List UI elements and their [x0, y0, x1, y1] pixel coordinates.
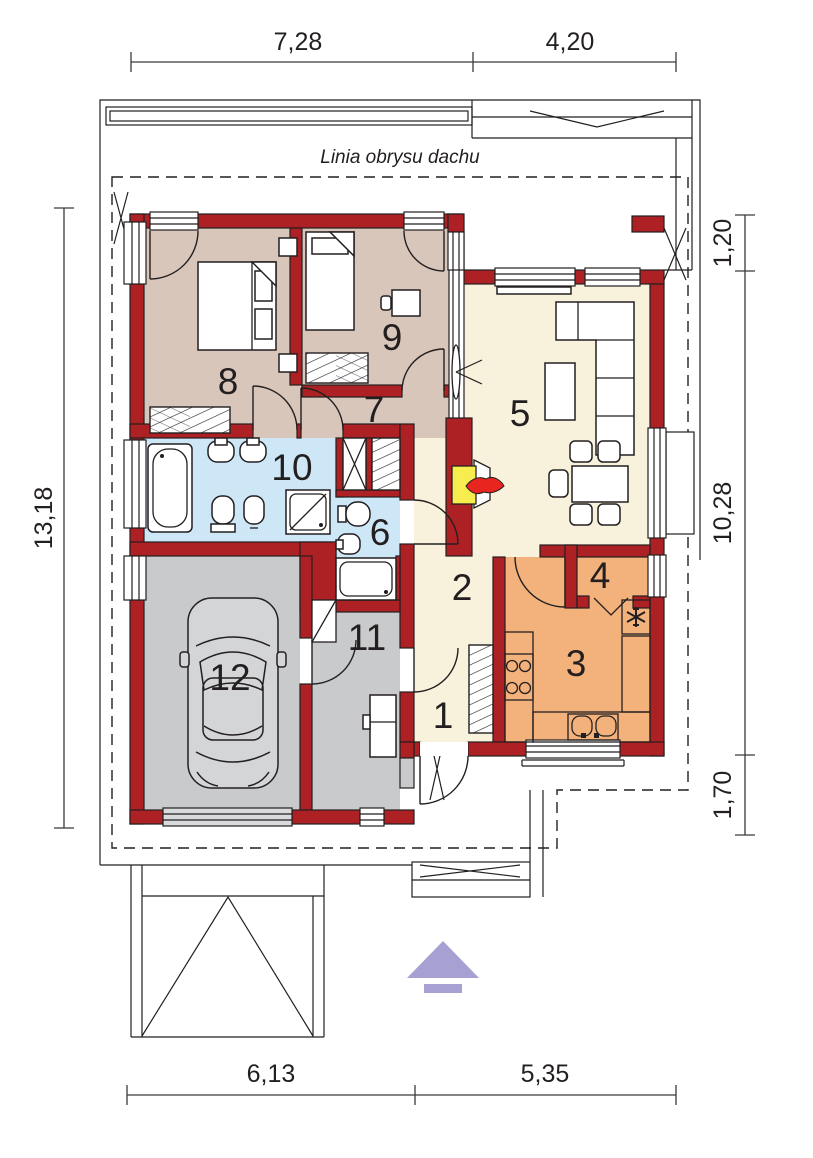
installation-shaft	[343, 438, 366, 490]
window-garage-left	[124, 556, 146, 600]
door-bedroom9-top	[404, 212, 444, 230]
dining-table	[572, 466, 628, 502]
utility-vent	[360, 808, 384, 826]
room-label-4: 4	[590, 555, 611, 596]
room-label-1: 1	[433, 695, 454, 736]
window-spine-top	[448, 232, 464, 270]
room-label-10: 10	[271, 447, 312, 488]
shower	[286, 490, 330, 534]
dim-bottom-2: 5,35	[521, 1060, 570, 1088]
front-door-opening	[420, 742, 468, 756]
washbasin	[336, 534, 360, 554]
desk-chair	[381, 296, 391, 310]
downspout-mark-right	[664, 228, 686, 280]
pantry-floor	[577, 557, 650, 596]
chair	[570, 504, 592, 525]
room-label-9: 9	[382, 317, 403, 358]
room-label-7: 7	[364, 389, 385, 430]
wardrobe	[150, 407, 230, 433]
tv-bench	[497, 287, 571, 294]
terrace-pier	[632, 216, 664, 232]
roof-outline-label: Linia obrysu dachu	[320, 147, 480, 168]
window-living-top-2	[585, 268, 640, 286]
window-bathroom-left	[124, 440, 146, 528]
coffee-table	[545, 363, 575, 420]
toilet	[338, 502, 370, 526]
duct-corner	[312, 600, 336, 642]
dimension-right: 1,20 10,28 1,70	[709, 215, 755, 835]
dimension-bottom: 6,13 5,35	[127, 1060, 676, 1105]
driveway-mark	[142, 897, 313, 1036]
chair	[570, 441, 592, 462]
room-label-2: 2	[452, 567, 473, 608]
chair	[598, 504, 620, 525]
entrance-steps	[412, 790, 543, 897]
wardrobe	[306, 353, 368, 383]
dim-top-1: 7,28	[274, 28, 323, 56]
porch-post	[400, 758, 414, 788]
door-arc-front	[420, 756, 468, 804]
window-bedroom8-left	[124, 222, 146, 284]
room-label-8: 8	[218, 361, 239, 402]
room-label-5: 5	[510, 393, 531, 434]
room-label-3: 3	[566, 643, 587, 684]
toilet	[211, 496, 235, 532]
terrace-door	[648, 428, 694, 538]
room-label-11: 11	[348, 617, 386, 658]
room-label-6: 6	[370, 512, 391, 553]
window-pantry-right	[648, 555, 666, 597]
dimension-left: 13,18	[30, 208, 74, 828]
door-bedroom8-top	[150, 212, 198, 230]
dim-left-1: 13,18	[30, 487, 58, 550]
nightstand	[279, 354, 297, 372]
dim-right-1: 1,20	[709, 219, 737, 268]
roof-slope-mark	[530, 111, 664, 127]
dim-top-2: 4,20	[546, 28, 595, 56]
garage-door	[163, 808, 292, 826]
window-living-top-1	[495, 268, 575, 286]
wardrobe	[469, 645, 493, 733]
porch-pier	[400, 742, 414, 758]
chair	[549, 470, 568, 497]
carport	[131, 865, 324, 1037]
desk	[392, 290, 420, 316]
bathtub	[148, 444, 192, 532]
shower-tray	[336, 558, 396, 600]
entrance-arrow-icon	[407, 941, 479, 993]
wardrobe	[372, 438, 400, 490]
floor-plan-canvas: 7,28 4,20 13,18 1,20 10,28 1,70 6,13 5,3…	[0, 0, 813, 1158]
chair	[598, 441, 620, 462]
dim-right-2: 10,28	[709, 482, 737, 545]
dimension-top: 7,28 4,20	[131, 28, 676, 72]
window-kitchen-bottom	[522, 740, 624, 766]
room-label-12: 12	[209, 657, 250, 698]
dim-right-3: 1,70	[709, 771, 737, 820]
dim-bottom-1: 6,13	[247, 1060, 296, 1088]
nightstand	[279, 238, 297, 256]
